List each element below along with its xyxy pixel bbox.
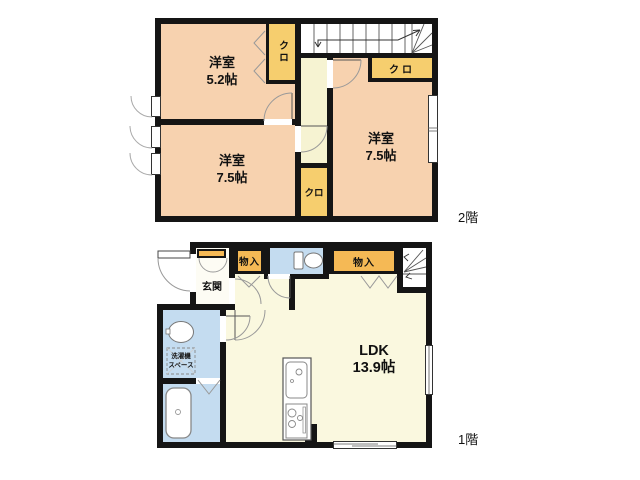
wall [264, 248, 270, 274]
floor1-wet-area [163, 310, 220, 442]
wall [323, 248, 331, 274]
entrance-door-opening [190, 254, 196, 292]
door-opening [327, 60, 333, 88]
door-opening [229, 278, 235, 304]
storage-label: 物入 [353, 254, 375, 269]
wall [190, 242, 432, 248]
casement-window [151, 96, 161, 117]
floor2-staircase-area [301, 24, 432, 53]
floor1-storage-right: 物入 [331, 248, 397, 274]
casement-window [151, 126, 161, 148]
door-opening [220, 316, 226, 342]
sliding-window [333, 441, 397, 449]
floor1-toilet-room [270, 248, 323, 274]
entrance-door [158, 251, 190, 291]
casement-window [151, 153, 161, 175]
wall [157, 304, 163, 448]
closet-label: クロ [275, 40, 290, 64]
wall [305, 424, 317, 444]
room-label: 洋室 7.5帖 [365, 131, 396, 165]
closet-label: クロ [389, 61, 415, 76]
genkan-label: 玄関 [202, 281, 222, 294]
floor2-hallway [301, 58, 327, 163]
door-opening [196, 378, 220, 384]
floor-plan-canvas: クロ クロ クロ 物入 物入 [0, 0, 640, 480]
wall [397, 287, 432, 293]
wall [301, 53, 432, 58]
floor2-closet-right: クロ [368, 58, 432, 82]
sliding-window [428, 95, 438, 163]
floor-label-1f: 1階 [458, 429, 478, 448]
floor1-storage-left: 物入 [235, 248, 264, 274]
laundry-space-label: 洗濯機 スペース [168, 353, 193, 371]
window-swings-floor2 [130, 96, 152, 175]
room-label: 洋室 5.2帖 [206, 55, 237, 89]
room-label: 洋室 7.5帖 [216, 153, 247, 187]
sliding-window [425, 345, 433, 395]
floor1-staircase-area [403, 248, 426, 287]
shoe-cabinet [197, 249, 226, 258]
ldk-label: LDK 13.9帖 [353, 343, 396, 378]
wall [289, 274, 295, 310]
floor2-closet-top: クロ [266, 24, 295, 84]
door-opening [264, 119, 292, 125]
storage-label: 物入 [239, 254, 260, 268]
wall [301, 163, 327, 168]
closet-label: クロ [304, 185, 323, 199]
door-opening [268, 274, 290, 279]
floor-label-2f: 2階 [458, 207, 478, 226]
floor2-closet-bottom: クロ [301, 168, 327, 216]
door-opening [295, 126, 301, 152]
